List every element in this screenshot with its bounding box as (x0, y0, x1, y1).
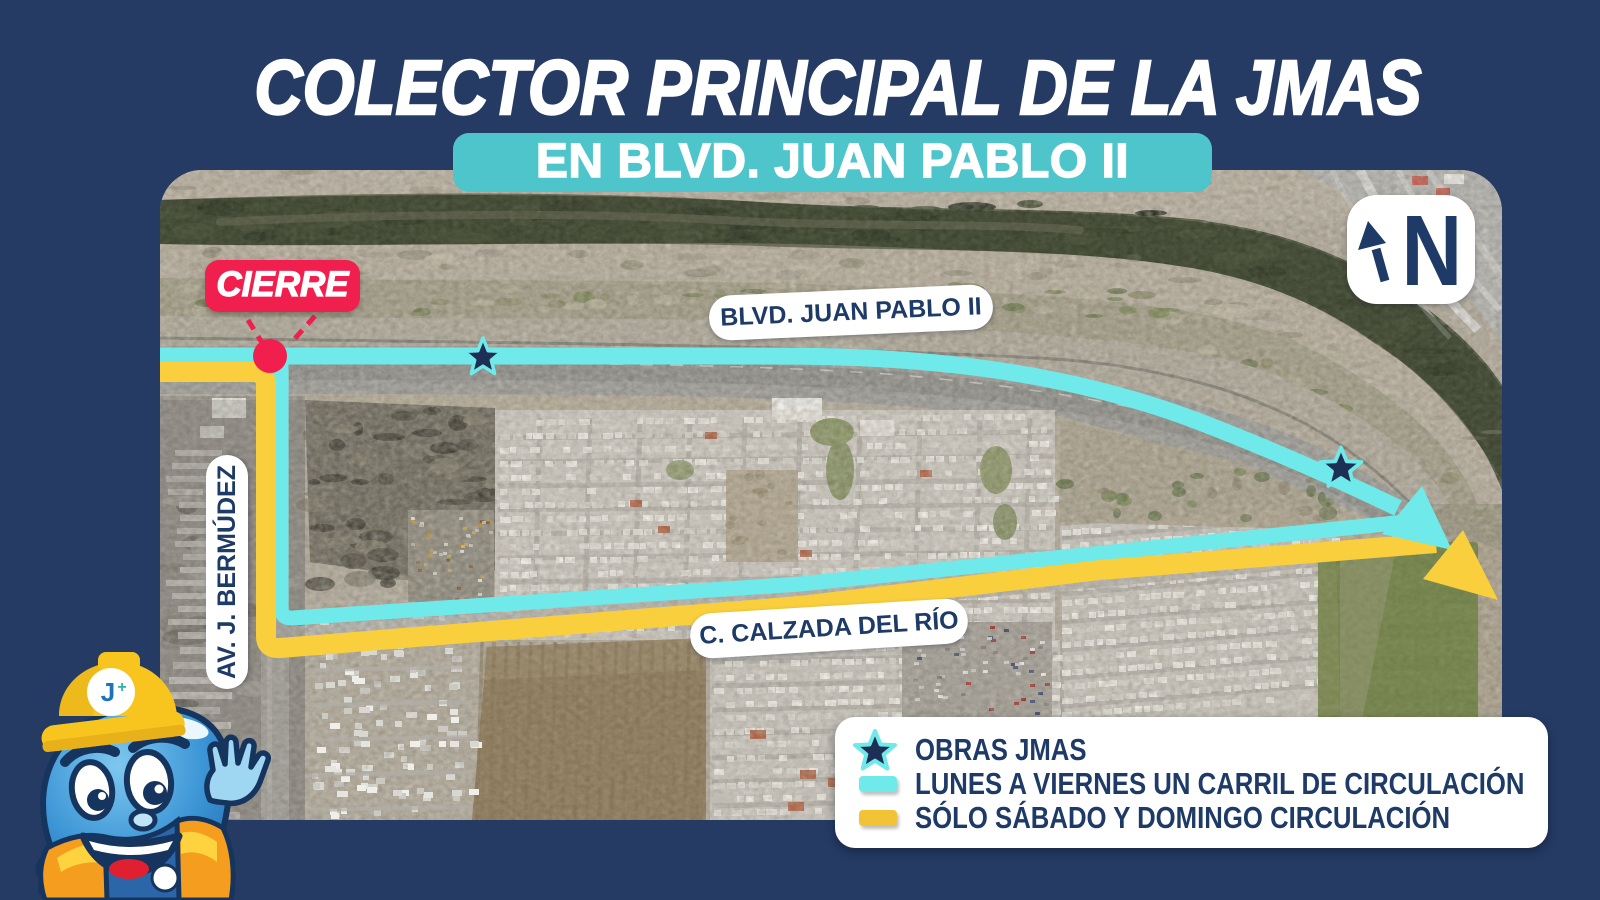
svg-text:J: J (101, 677, 115, 707)
svg-text:+: + (117, 679, 126, 696)
